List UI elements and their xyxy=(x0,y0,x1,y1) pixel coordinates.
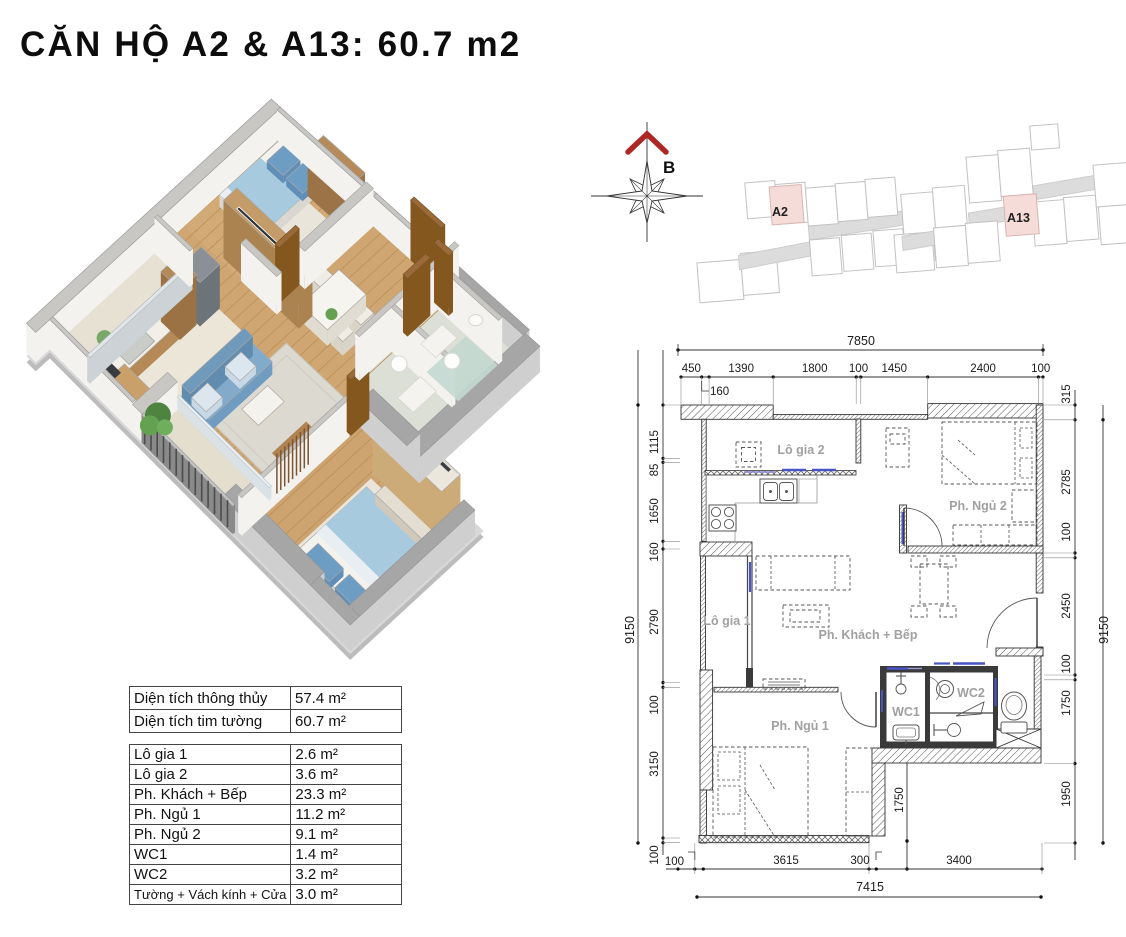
svg-text:A2: A2 xyxy=(772,205,788,219)
svg-text:100: 100 xyxy=(849,363,868,375)
svg-text:315: 315 xyxy=(1061,384,1073,403)
svg-text:160: 160 xyxy=(710,386,729,398)
svg-text:1750: 1750 xyxy=(1061,690,1073,716)
svg-text:Lô gia 1: Lô gia 1 xyxy=(703,614,750,628)
svg-text:100: 100 xyxy=(665,856,684,868)
svg-text:WC1: WC1 xyxy=(892,705,920,719)
svg-text:450: 450 xyxy=(682,363,701,375)
svg-text:3615: 3615 xyxy=(773,855,799,867)
svg-text:2790: 2790 xyxy=(649,609,661,635)
svg-text:3150: 3150 xyxy=(649,751,661,777)
svg-text:2400: 2400 xyxy=(970,363,996,375)
svg-text:9150: 9150 xyxy=(623,616,637,644)
svg-text:Lô gia 2: Lô gia 2 xyxy=(777,443,824,457)
svg-text:9150: 9150 xyxy=(1097,616,1111,644)
svg-text:B: B xyxy=(663,158,675,177)
svg-text:100: 100 xyxy=(1061,654,1073,673)
svg-text:WC2: WC2 xyxy=(957,686,985,700)
svg-text:Ph. Khách + Bếp: Ph. Khách + Bếp xyxy=(819,628,918,642)
svg-text:1800: 1800 xyxy=(802,363,828,375)
svg-text:2785: 2785 xyxy=(1061,469,1073,495)
svg-text:7415: 7415 xyxy=(856,880,884,894)
svg-text:2450: 2450 xyxy=(1061,593,1073,619)
svg-text:85: 85 xyxy=(649,464,661,477)
svg-text:A13: A13 xyxy=(1007,211,1030,225)
svg-text:1115: 1115 xyxy=(649,430,661,454)
svg-text:3400: 3400 xyxy=(946,855,972,867)
svg-text:1450: 1450 xyxy=(882,363,908,375)
svg-text:1950: 1950 xyxy=(1061,781,1073,807)
svg-text:7850: 7850 xyxy=(847,334,875,348)
svg-text:100: 100 xyxy=(649,845,661,864)
svg-text:100: 100 xyxy=(649,695,661,714)
svg-text:1750: 1750 xyxy=(894,787,906,813)
svg-text:Ph. Ngủ 2: Ph. Ngủ 2 xyxy=(949,499,1007,513)
svg-text:Ph. Ngủ 1: Ph. Ngủ 1 xyxy=(771,719,829,733)
svg-text:100: 100 xyxy=(1061,522,1073,541)
svg-text:1390: 1390 xyxy=(728,363,754,375)
svg-text:100: 100 xyxy=(1031,363,1050,375)
svg-text:300: 300 xyxy=(850,855,869,867)
svg-text:160: 160 xyxy=(649,542,661,561)
svg-text:1650: 1650 xyxy=(649,498,661,524)
